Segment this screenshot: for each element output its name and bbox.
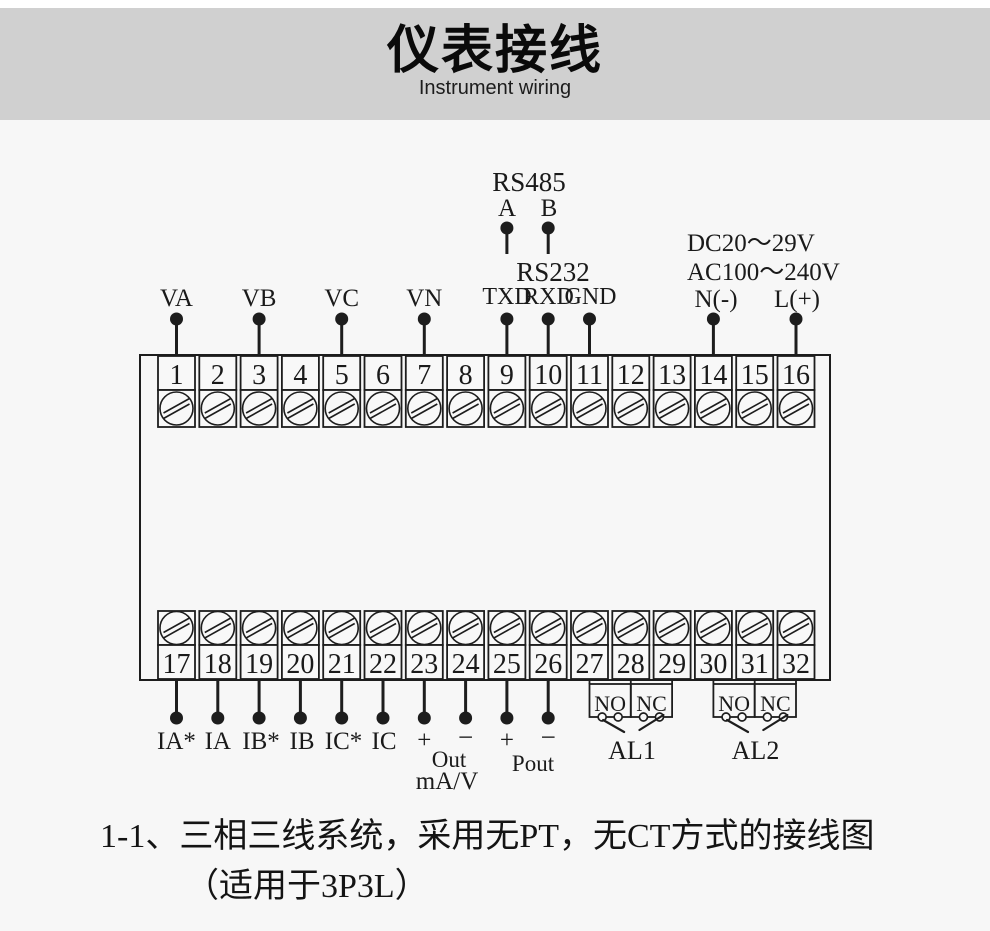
terminal-number: 6: [376, 360, 390, 391]
terminal-6: 6: [365, 356, 402, 427]
terminal-11: 11: [571, 356, 608, 427]
ac-range-label: AC100～240V: [687, 259, 840, 286]
terminal-32: 32: [778, 611, 815, 680]
terminal-18: 18: [199, 611, 236, 680]
rs232-labels: RS232 TXD RXD GND: [482, 257, 616, 310]
terminal-number: 23: [410, 649, 438, 680]
vb-label: VB: [242, 285, 277, 312]
al1-label: AL1: [608, 736, 656, 765]
ib-label: IB: [290, 728, 315, 755]
caption: 1-1、三相三线系统，采用无PT，无CT方式的接线图 （适用于3P3L）: [100, 812, 874, 912]
top-terminal-row: 12345678910111213141516: [158, 356, 815, 427]
terminal-number: 10: [534, 360, 562, 391]
ic-label: IC: [372, 728, 397, 755]
terminal-4: 4: [282, 356, 319, 427]
terminal-29: 29: [654, 611, 691, 680]
terminal-14: 14: [695, 356, 732, 427]
line-label: L(+): [774, 286, 820, 313]
terminal-19: 19: [241, 611, 278, 680]
ic-star-label: IC*: [325, 728, 363, 755]
terminal-23: 23: [406, 611, 443, 680]
terminal-12: 12: [612, 356, 649, 427]
rs485-title: RS485: [492, 167, 566, 197]
terminal-number: 20: [286, 649, 314, 680]
terminal-30: 30: [695, 611, 732, 680]
terminal-22: 22: [365, 611, 402, 680]
pout-minus-label: −: [541, 722, 556, 752]
terminal-number: 2: [211, 360, 225, 391]
terminal-8: 8: [447, 356, 484, 427]
terminal-number: 7: [417, 360, 431, 391]
terminal-number: 11: [576, 360, 603, 391]
terminal-5: 5: [323, 356, 360, 427]
terminal-7: 7: [406, 356, 443, 427]
terminal-number: 21: [328, 649, 356, 680]
terminal-28: 28: [612, 611, 649, 680]
al1-no-label: NO: [594, 691, 626, 716]
terminal-number: 17: [163, 649, 191, 680]
terminal-number: 13: [658, 360, 686, 391]
terminal-number: 31: [741, 649, 769, 680]
terminal-number: 14: [699, 360, 727, 391]
terminal-number: 16: [782, 360, 810, 391]
terminal-number: 27: [576, 649, 604, 680]
terminal-number: 25: [493, 649, 521, 680]
terminal-15: 15: [736, 356, 773, 427]
terminal-31: 31: [736, 611, 773, 680]
rs485-labels: RS485 A B: [492, 167, 566, 222]
current-input-labels: IA* IA IB* IB IC* IC: [157, 728, 396, 755]
al2-label: AL2: [732, 736, 780, 765]
terminal-24: 24: [447, 611, 484, 680]
out-plus-label: +: [417, 727, 431, 754]
terminal-number: 26: [534, 649, 562, 680]
va-label: VA: [160, 285, 193, 312]
wiring-diagram: 12345678910111213141516 1718192021222324…: [0, 0, 990, 931]
terminal-27: 27: [571, 611, 608, 680]
terminal-number: 32: [782, 649, 810, 680]
terminal-13: 13: [654, 356, 691, 427]
dc-range-label: DC20～29V: [687, 230, 815, 257]
terminal-number: 1: [170, 360, 184, 391]
terminal-number: 12: [617, 360, 645, 391]
al2-nc-label: NC: [760, 691, 791, 716]
ia-label: IA: [205, 728, 231, 755]
gnd-label: GND: [565, 284, 617, 310]
ia-star-label: IA*: [157, 728, 196, 755]
terminal-21: 21: [323, 611, 360, 680]
terminal-number: 30: [699, 649, 727, 680]
rs232-title: RS232: [516, 257, 590, 287]
terminal-26: 26: [530, 611, 567, 680]
terminal-number: 19: [245, 649, 273, 680]
vn-label: VN: [406, 285, 442, 312]
terminal-number: 3: [252, 360, 266, 391]
terminal-3: 3: [241, 356, 278, 427]
out-unit-label: mA/V: [416, 768, 479, 795]
terminal-20: 20: [282, 611, 319, 680]
terminal-number: 8: [459, 360, 473, 391]
terminal-number: 9: [500, 360, 514, 391]
terminal-number: 18: [204, 649, 232, 680]
caption-line1: 1-1、三相三线系统，采用无PT，无CT方式的接线图: [100, 812, 874, 862]
neutral-label: N(-): [694, 286, 737, 313]
al2-no-label: NO: [718, 691, 750, 716]
vc-label: VC: [324, 285, 359, 312]
terminal-number: 15: [741, 360, 769, 391]
terminal-16: 16: [778, 356, 815, 427]
terminal-17: 17: [158, 611, 195, 680]
terminal-number: 4: [293, 360, 307, 391]
pulse-output-labels: + − Pout: [500, 722, 556, 776]
bottom-terminal-row: 17181920212223242526272829303132: [158, 611, 815, 680]
rs485-b-label: B: [541, 195, 558, 222]
terminal-2: 2: [199, 356, 236, 427]
terminal-1: 1: [158, 356, 195, 427]
terminal-number: 29: [658, 649, 686, 680]
terminal-number: 22: [369, 649, 397, 680]
ib-star-label: IB*: [242, 728, 280, 755]
terminal-10: 10: [530, 356, 567, 427]
caption-line2: （适用于3P3L）: [100, 862, 874, 912]
terminal-number: 5: [335, 360, 349, 391]
voltage-input-labels: VA VB VC VN: [160, 285, 442, 312]
terminal-number: 24: [452, 649, 480, 680]
terminal-9: 9: [488, 356, 525, 427]
power-supply-labels: DC20～29V AC100～240V N(-) L(+): [687, 230, 840, 313]
pout-label: Pout: [512, 751, 555, 776]
relay-labels: NO NC AL1 NO NC AL2: [594, 691, 790, 765]
al1-nc-label: NC: [636, 691, 667, 716]
terminal-number: 28: [617, 649, 645, 680]
analog-output-labels: + − Out mA/V: [416, 722, 479, 795]
pout-plus-label: +: [500, 727, 514, 754]
terminal-25: 25: [488, 611, 525, 680]
rs485-a-label: A: [498, 195, 516, 222]
